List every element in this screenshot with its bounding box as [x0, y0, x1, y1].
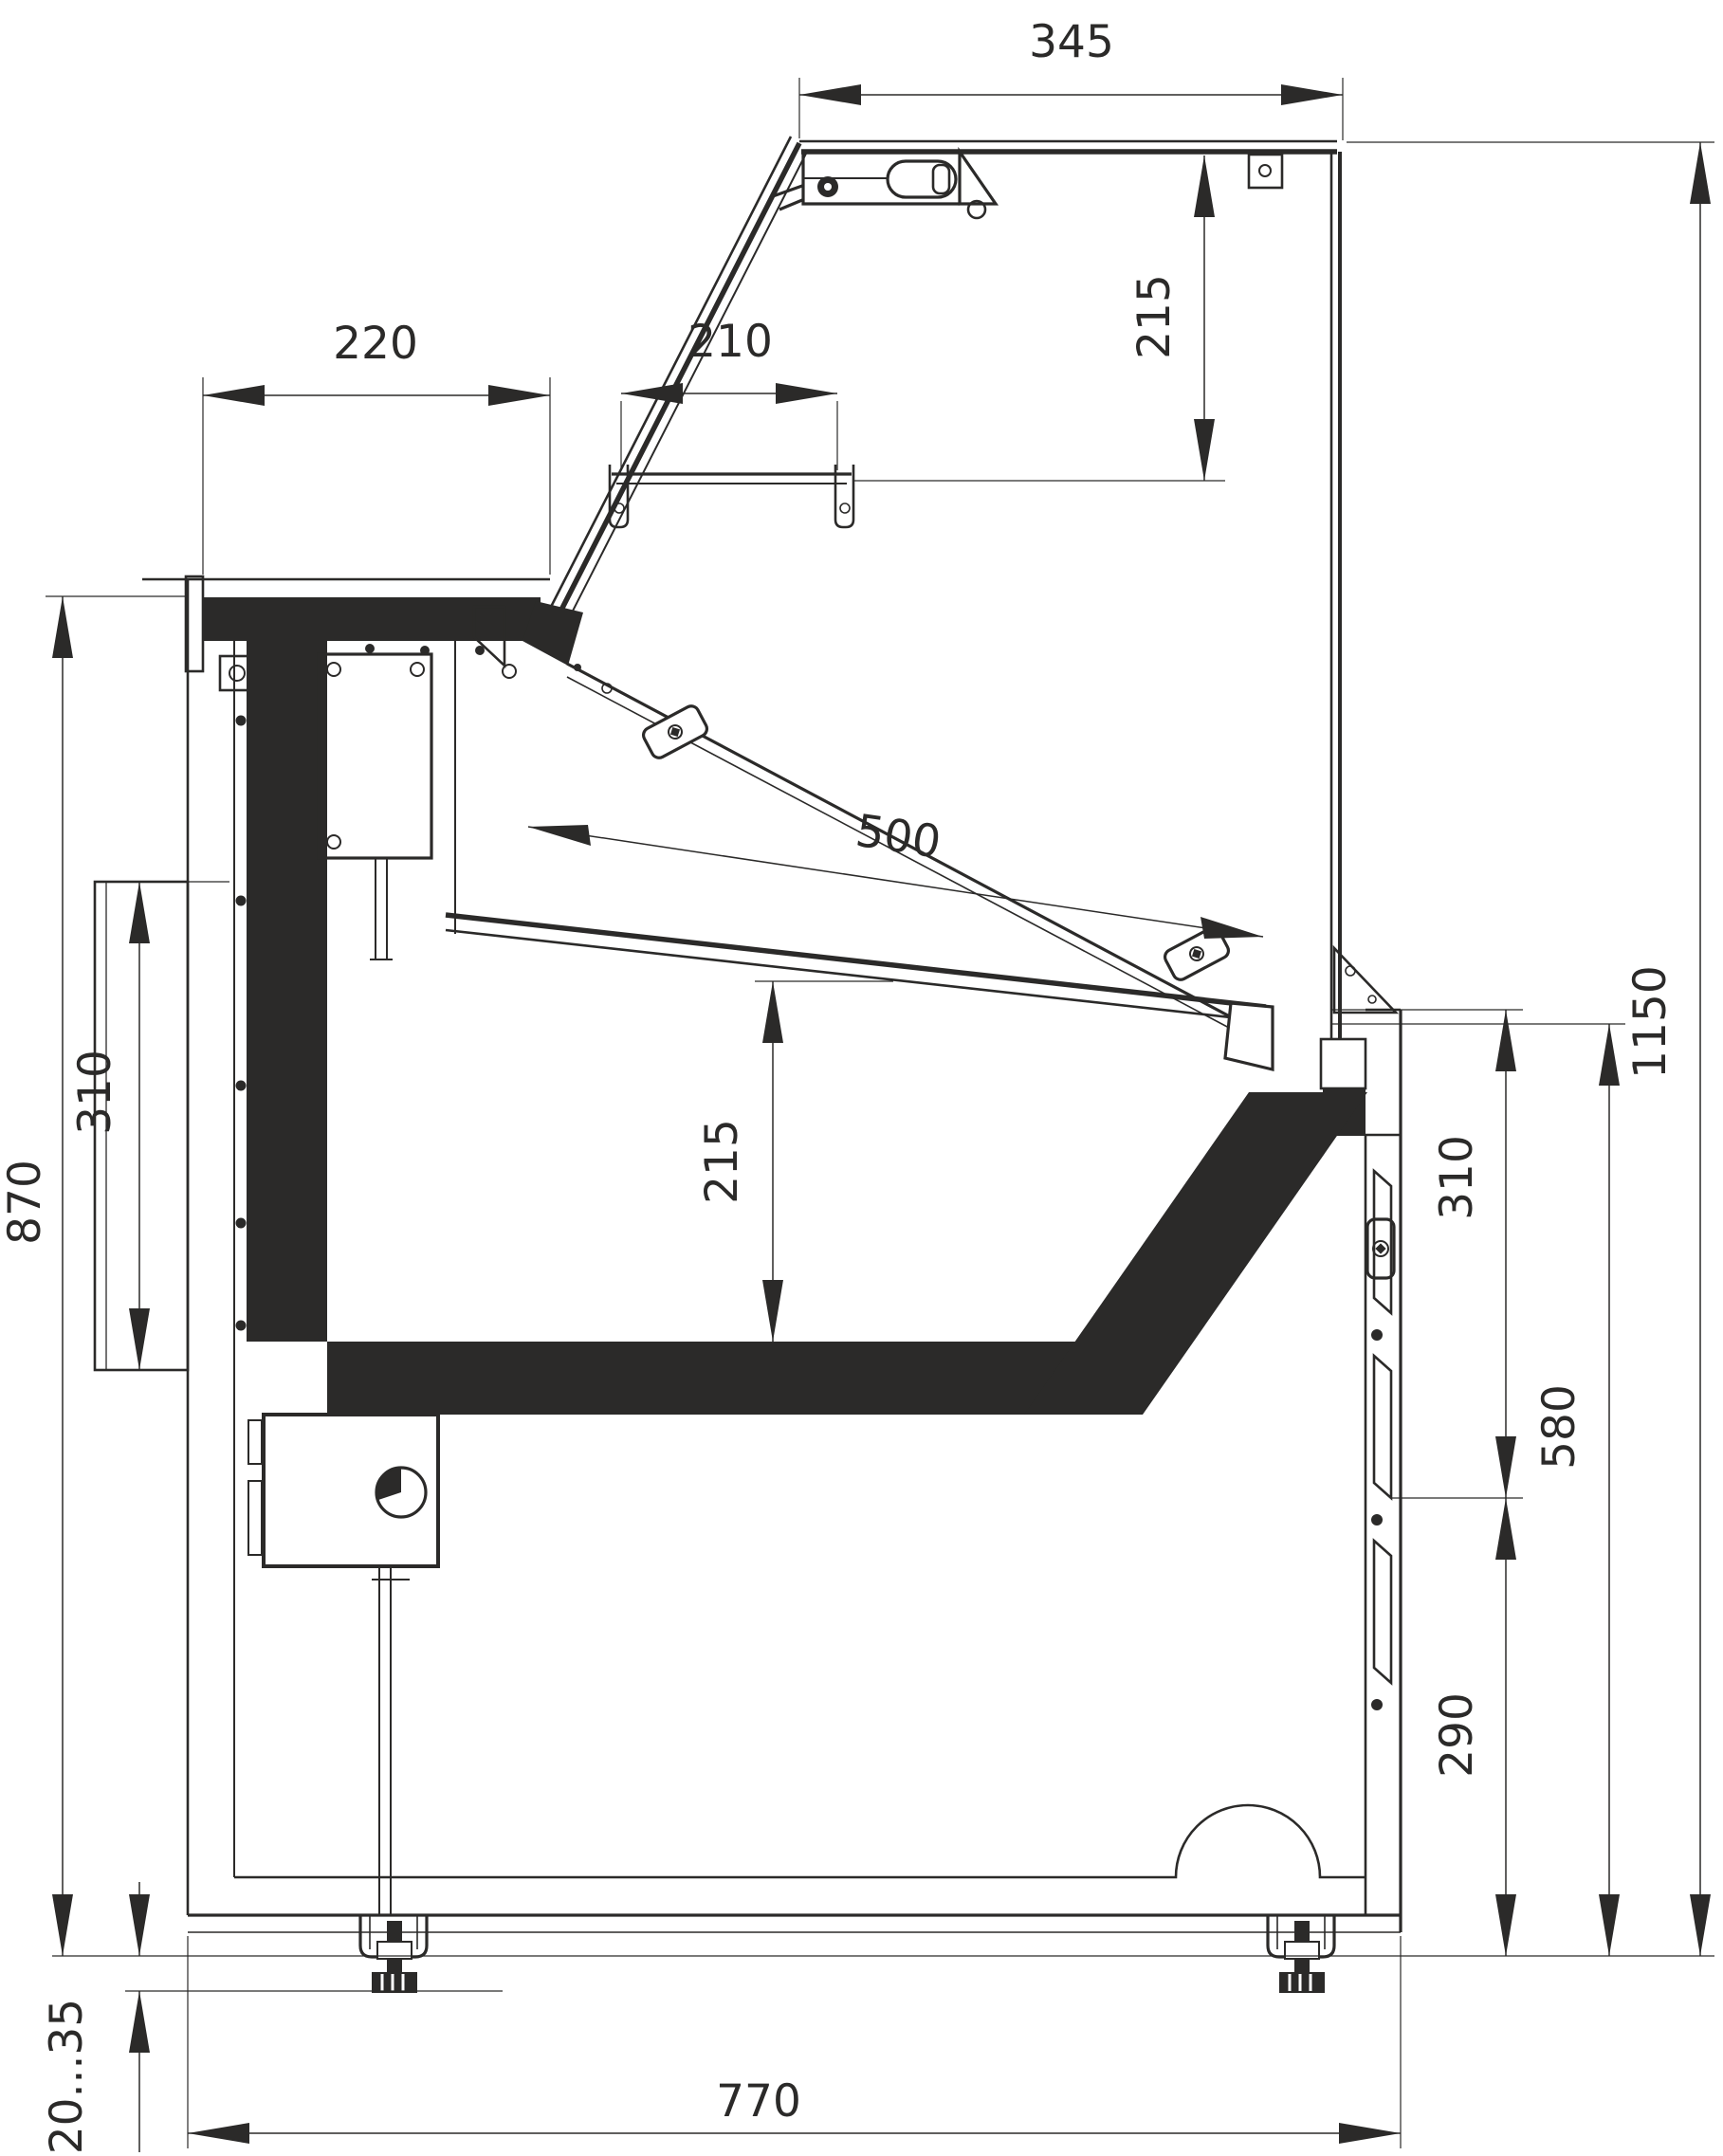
dim-label-215-top: 215: [1128, 274, 1181, 359]
dimension-deck-length: 500: [528, 805, 1263, 939]
dim-label-220: 220: [333, 318, 418, 370]
adjustable-foot-right: [1268, 1915, 1334, 1993]
dim-label-290: 290: [1431, 1692, 1483, 1778]
dimension-worktop-depth: 220: [203, 318, 550, 575]
liner-clip: [641, 703, 709, 760]
dim-label-345: 345: [1029, 16, 1114, 68]
arrowhead: [1281, 84, 1343, 105]
adjustable-foot-left: [360, 1915, 427, 1993]
well-insulation: [327, 1092, 1394, 1415]
drawing-page: 345 220 210 215 500 215: [0, 0, 1723, 2156]
dimension-foot-adjust-range: 20...35: [41, 1882, 1714, 2154]
dim-label-310-right: 310: [1431, 1135, 1483, 1220]
base-floor: [234, 1805, 1366, 1877]
back-wall: [188, 579, 327, 1915]
dimension-deck-to-well-floor: 215: [696, 981, 893, 1342]
inclined-front-glass: [549, 137, 808, 624]
dimension-worktop-height: 870: [0, 596, 186, 1956]
dim-label-20-35: 20...35: [41, 1999, 93, 2154]
canopy: [799, 141, 1337, 204]
dim-label-1150: 1150: [1624, 965, 1677, 1079]
worktop: [142, 576, 583, 690]
deck-front-profile: [1225, 1003, 1273, 1069]
back-wall-insulation: [247, 641, 327, 1342]
arrowhead: [799, 84, 861, 105]
front-vertical-glass: [1331, 152, 1340, 1039]
dim-label-310-left: 310: [69, 1050, 121, 1135]
corner-gusset: [1334, 948, 1396, 1013]
dimension-shelf-depth: 210: [621, 316, 837, 470]
display-deck: [446, 915, 1273, 1069]
dim-label-770: 770: [716, 2075, 801, 2128]
dim-label-215-mid: 215: [696, 1119, 748, 1204]
dimension-base-depth: 770: [188, 1936, 1401, 2148]
electrical-box: [264, 1415, 438, 1566]
dimension-front-louver-section: 290: [1431, 1498, 1516, 1956]
canopy-corner-bracket: [1249, 155, 1282, 188]
front-air-duct: [1024, 1092, 1367, 1415]
dim-label-210: 210: [687, 316, 773, 368]
display-counter-section-drawing: 345 220 210 215 500 215: [0, 0, 1723, 2156]
dimension-front-upper-section: 310: [1331, 1010, 1523, 1956]
dim-label-870: 870: [0, 1160, 51, 1245]
dimension-overall-top-depth: 345: [799, 16, 1343, 140]
canopy-lamp-assembly: [773, 152, 996, 218]
dimension-rear-opening-height: 310: [69, 882, 229, 1370]
upper-shelf: [610, 465, 853, 527]
dim-label-580: 580: [1533, 1384, 1586, 1470]
dim-label-500: 500: [852, 805, 944, 869]
